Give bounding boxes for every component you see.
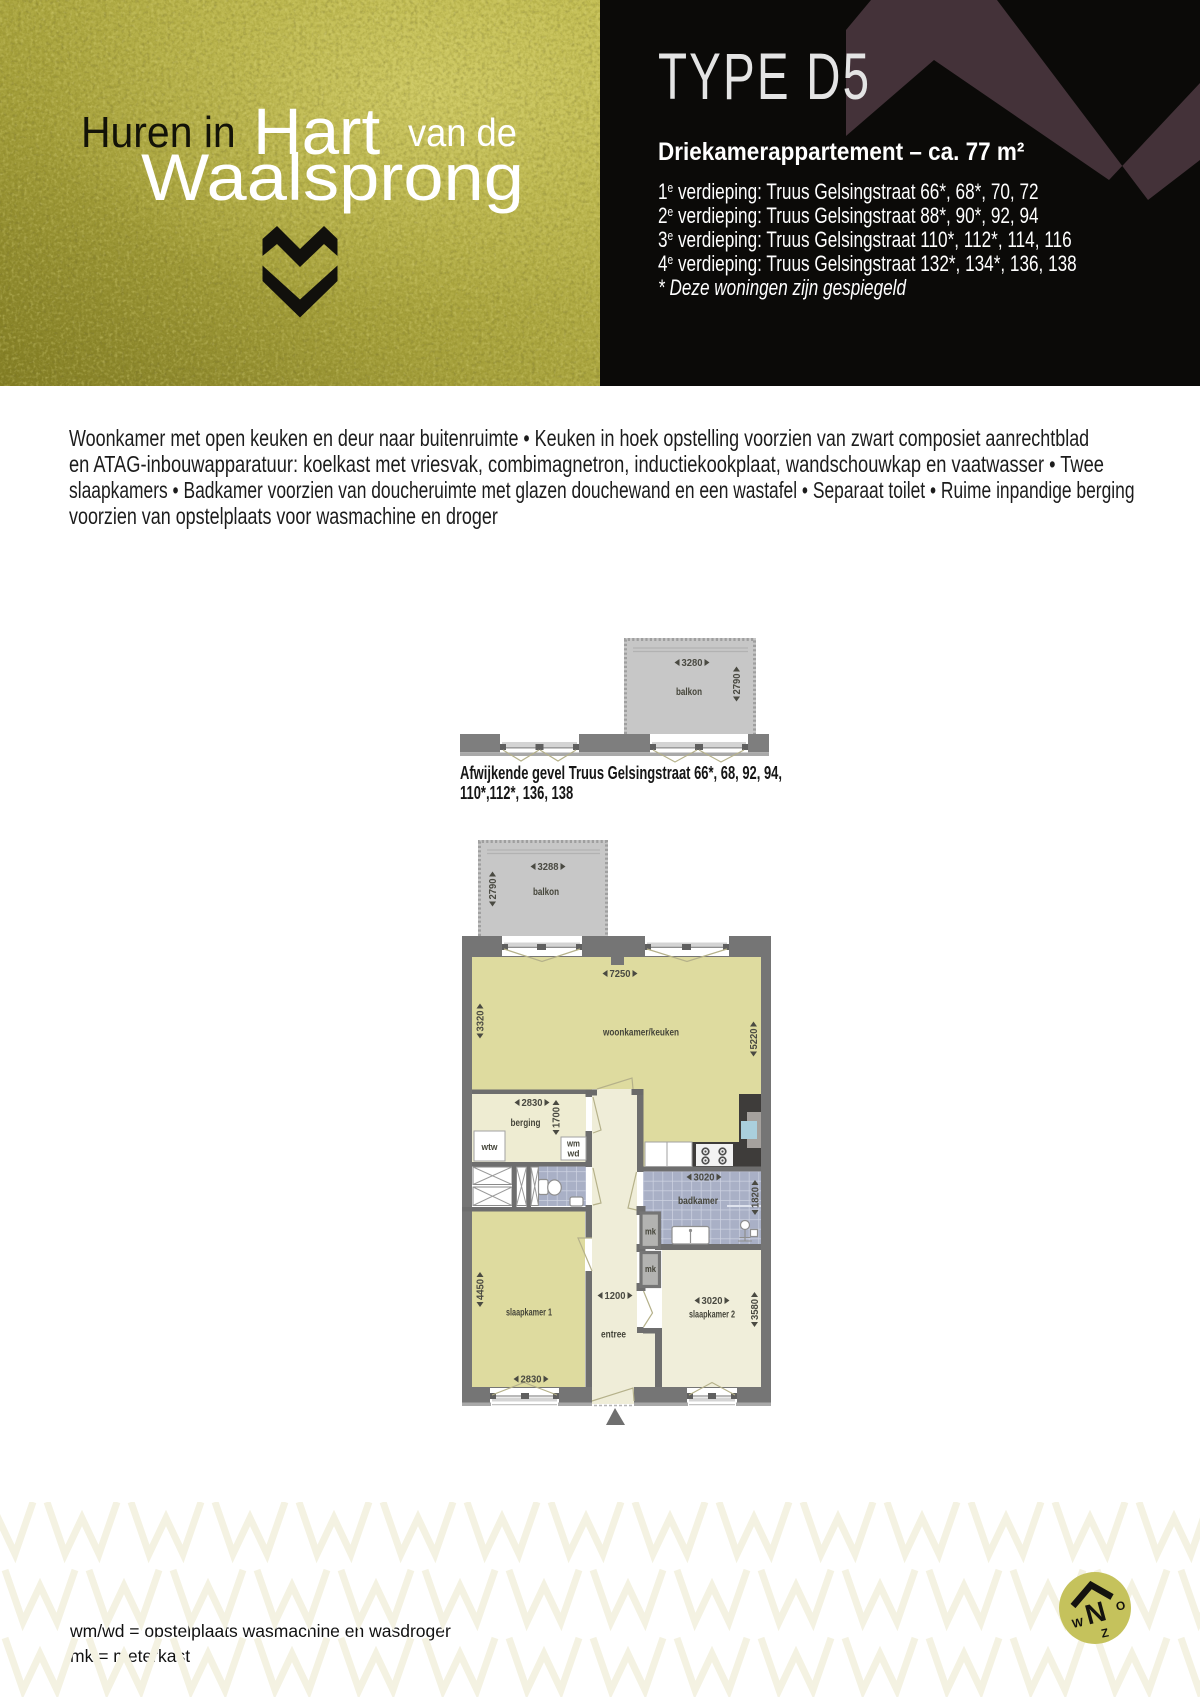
svg-text:1200: 1200 bbox=[605, 1290, 626, 1302]
svg-text:balkon: balkon bbox=[533, 887, 559, 898]
svg-text:7250: 7250 bbox=[610, 968, 631, 980]
svg-text:wm: wm bbox=[566, 1139, 580, 1149]
svg-text:woonkamer/keuken: woonkamer/keuken bbox=[602, 1027, 679, 1039]
svg-text:4450: 4450 bbox=[475, 1279, 487, 1300]
svg-text:badkamer: badkamer bbox=[678, 1195, 718, 1207]
svg-text:balkon: balkon bbox=[676, 687, 702, 698]
svg-text:3580: 3580 bbox=[749, 1299, 761, 1320]
svg-text:2830: 2830 bbox=[521, 1374, 542, 1386]
svg-text:3320: 3320 bbox=[475, 1010, 487, 1031]
svg-text:wd: wd bbox=[567, 1149, 580, 1159]
svg-text:3280: 3280 bbox=[682, 657, 703, 669]
svg-text:2830: 2830 bbox=[522, 1097, 543, 1109]
svg-text:1820: 1820 bbox=[750, 1187, 762, 1208]
svg-text:slaapkamer 2: slaapkamer 2 bbox=[689, 1309, 735, 1321]
svg-text:5220: 5220 bbox=[748, 1028, 760, 1049]
svg-text:1700: 1700 bbox=[551, 1107, 563, 1128]
svg-text:wtw: wtw bbox=[481, 1142, 498, 1153]
svg-text:3020: 3020 bbox=[694, 1172, 715, 1184]
svg-text:mk: mk bbox=[645, 1227, 657, 1237]
svg-text:3288: 3288 bbox=[538, 861, 559, 873]
svg-text:berging: berging bbox=[511, 1117, 541, 1129]
svg-text:slaapkamer 1: slaapkamer 1 bbox=[506, 1307, 552, 1319]
svg-text:2790: 2790 bbox=[487, 878, 499, 899]
svg-text:entree: entree bbox=[601, 1329, 626, 1341]
svg-text:2790: 2790 bbox=[731, 673, 743, 694]
svg-text:3020: 3020 bbox=[702, 1295, 723, 1307]
svg-text:mk: mk bbox=[645, 1264, 657, 1274]
